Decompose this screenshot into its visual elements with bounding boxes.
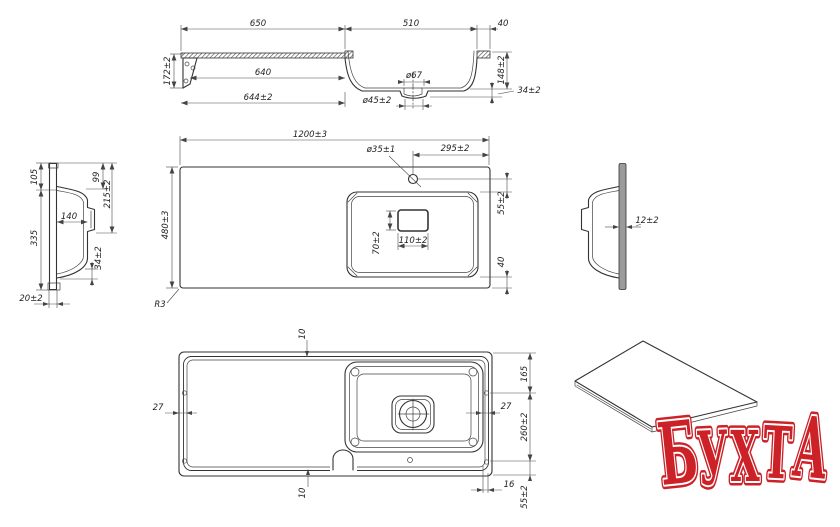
technical-drawing-page: 650 510 40 172±2 640 644±2 ø67 ø45±2 148…	[0, 0, 840, 527]
molding-line-inner	[187, 360, 485, 467]
dim-label: 10	[298, 488, 308, 499]
fixing-hole	[408, 458, 413, 463]
plan-dimensions	[166, 136, 512, 303]
dim-label: 644±2	[244, 93, 273, 103]
dim-label: 1200±3	[293, 130, 327, 140]
dim-label: 27	[501, 402, 512, 412]
dim-label: 70±2	[372, 231, 382, 254]
dim-label: ø35±1	[366, 145, 396, 155]
faucet-leader	[389, 156, 421, 187]
elevation-dimensions	[170, 25, 514, 110]
dim-label: 335	[30, 230, 40, 246]
bowl-section-outer	[57, 187, 95, 279]
counter-outline	[179, 352, 492, 476]
overflow-hole	[398, 210, 428, 231]
drain-crosshair	[398, 399, 429, 430]
dim-label: 215±2	[103, 180, 113, 209]
dim-label: 110±2	[399, 236, 428, 246]
dim-label: 34±2	[94, 246, 104, 269]
side-elevation-view: 650 510 40 172±2 640 644±2 ø67 ø45±2 148…	[163, 19, 541, 110]
rim-section-right	[477, 51, 490, 58]
bowl-corner-boss	[469, 368, 477, 376]
logo-letter: Т	[761, 410, 794, 496]
logo-letter-kh: Х Х	[730, 416, 760, 498]
dim-label: R3	[154, 300, 165, 310]
dim-label: 99	[92, 172, 102, 183]
cross-section-right-view: 12±2	[582, 164, 659, 290]
logo-letter: У	[695, 414, 730, 502]
logo-letter: Х	[730, 416, 760, 498]
dim-label: 12±2	[635, 216, 658, 226]
bowl-corner-boss	[351, 438, 359, 446]
dim-label: 105	[30, 169, 40, 185]
bowl-outline-inner	[352, 197, 474, 273]
mounting-bracket	[183, 58, 197, 88]
bowl-profile-inner	[348, 51, 474, 88]
logo-letter-t: Т Т	[761, 410, 794, 496]
sink-drawing-svg: 650 510 40 172±2 640 644±2 ø67 ø45±2 148…	[0, 0, 840, 527]
dim-label: 55±2	[520, 485, 530, 508]
logo-letter-a: А А	[789, 397, 833, 499]
bowl-section-inner	[57, 191, 84, 275]
cross-section-left-view: 105 335 99 215±2 140 34±2 20±2	[19, 163, 117, 308]
fixing-hole	[182, 391, 186, 395]
dim-label: 40	[497, 257, 507, 268]
dim-label: 480±3	[161, 211, 171, 240]
dim-label: 27	[153, 403, 164, 413]
dim-label: 510	[403, 19, 419, 29]
counter-outline	[180, 167, 490, 288]
panel-profile	[50, 164, 57, 290]
dim-label: ø45±2	[362, 96, 392, 106]
dim-label: 140	[61, 212, 77, 222]
dim-label: 10	[298, 329, 308, 340]
dim-label: 148±2	[497, 56, 507, 85]
dim-label: 34±2	[517, 86, 540, 96]
panel-profile-filled	[619, 164, 626, 290]
dim-label: 640	[255, 68, 271, 78]
bottom-view: 10 10 27 27 165 260±2 16 55±2	[153, 329, 536, 509]
dim-label: 260±2	[520, 413, 530, 442]
dim-label: ø67	[405, 71, 423, 81]
dim-label: 295±2	[441, 144, 470, 154]
bowl-outline-outer	[347, 192, 478, 277]
bowl-section-outer	[582, 187, 620, 279]
bracket-hole	[184, 79, 188, 83]
bowl-corner-boss	[469, 438, 477, 446]
dim-label: 40	[498, 19, 509, 29]
dim-label: 55±2	[497, 191, 507, 214]
rim-section-left	[345, 51, 353, 58]
molding-line-outer	[184, 357, 489, 471]
logo-letter-u: У У	[695, 414, 730, 502]
dim-label: 20±2	[19, 294, 42, 304]
counter-top-strip	[181, 53, 345, 58]
dim-label: 650	[250, 19, 266, 29]
brand-logo: Б Б У У Х Х Т Т А А	[654, 397, 833, 506]
dim-label: 172±2	[163, 57, 173, 86]
bracket-hole	[185, 62, 189, 66]
fixing-hole	[182, 459, 186, 463]
logo-letter-b: Б Б	[654, 402, 702, 506]
logo-letter: А	[789, 397, 833, 499]
dim-label: 16	[504, 480, 515, 490]
logo-letter: Б	[654, 402, 702, 506]
bowl-corner-boss	[351, 368, 359, 376]
bowl-corner-ticks	[348, 193, 477, 276]
bowl-outline-3	[357, 374, 471, 441]
plan-view: 1200±3 480±3 ø35±1 295±2 55±2 110±2 70±2…	[154, 130, 512, 310]
bowl-section-inner	[593, 191, 620, 275]
dim-label: 165	[520, 366, 530, 382]
sheet-thickness-line	[577, 385, 651, 429]
